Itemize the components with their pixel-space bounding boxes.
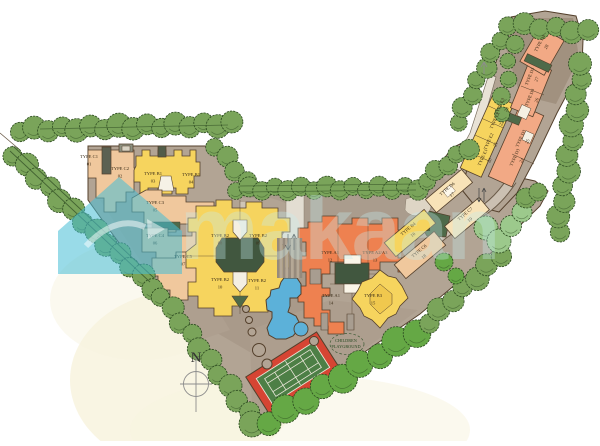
svg-text:TYPE B1: TYPE B1 bbox=[182, 172, 201, 177]
svg-text:CHILDREN: CHILDREN bbox=[335, 338, 357, 343]
svg-text:TYPE B1: TYPE B1 bbox=[144, 171, 163, 176]
svg-text:15: 15 bbox=[371, 301, 376, 306]
svg-text:TYPE C2: TYPE C2 bbox=[111, 166, 130, 171]
svg-text:03: 03 bbox=[151, 179, 156, 184]
svg-text:TYPE B3: TYPE B3 bbox=[364, 293, 383, 298]
svg-text:N: N bbox=[191, 350, 202, 366]
svg-text:TYPE B2: TYPE B2 bbox=[248, 278, 267, 283]
svg-text:10: 10 bbox=[218, 285, 223, 290]
svg-text:14: 14 bbox=[329, 301, 334, 306]
svg-text:makaan: makaan bbox=[180, 179, 499, 278]
svg-text:11: 11 bbox=[255, 286, 260, 291]
svg-text:PLAYGROUND: PLAYGROUND bbox=[331, 344, 360, 349]
svg-text:01: 01 bbox=[87, 162, 92, 167]
svg-text:TYPE A1: TYPE A1 bbox=[322, 293, 341, 298]
svg-text:TYPE C1: TYPE C1 bbox=[80, 154, 99, 159]
